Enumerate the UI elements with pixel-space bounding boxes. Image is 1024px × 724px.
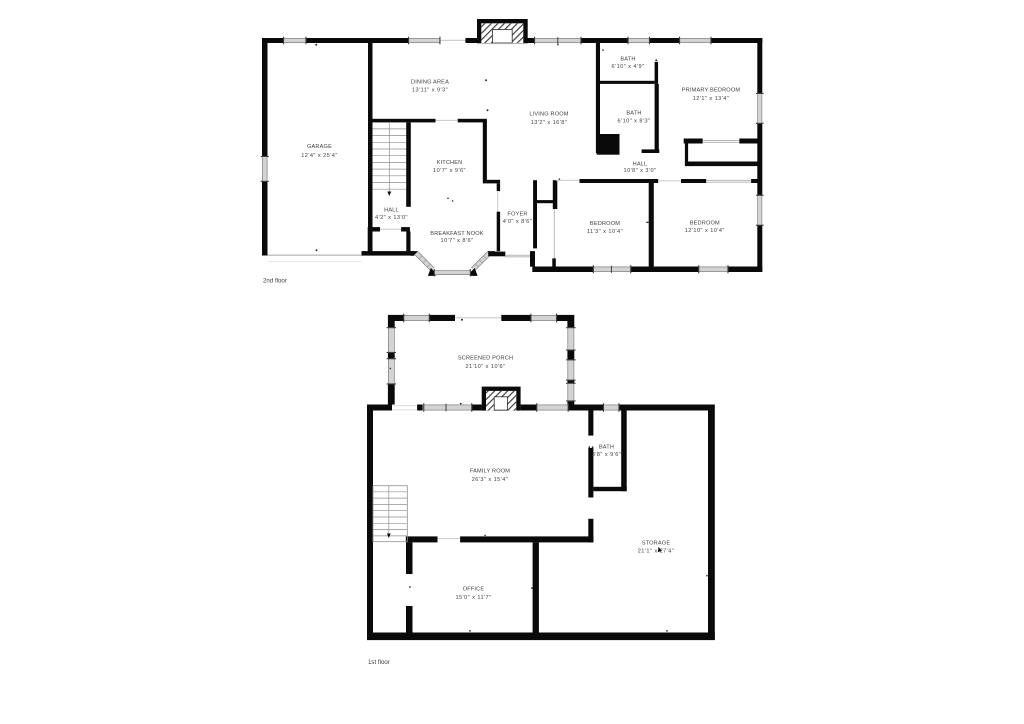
svg-text:12'1" x 13'4": 12'1" x 13'4" [693, 96, 730, 102]
svg-text:1st floor: 1st floor [368, 659, 390, 666]
svg-text:13'2" x 16'8": 13'2" x 16'8" [531, 120, 568, 126]
svg-text:2nd floor: 2nd floor [263, 278, 287, 285]
svg-text:BEDROOM: BEDROOM [590, 221, 620, 227]
svg-text:FOYER: FOYER [507, 212, 527, 218]
svg-text:12'4" x 25'4": 12'4" x 25'4" [301, 153, 338, 159]
svg-text:10'7" x 8'6": 10'7" x 8'6" [441, 238, 474, 244]
svg-text:PRIMARY BEDROOM: PRIMARY BEDROOM [682, 88, 741, 94]
svg-text:HALL: HALL [384, 208, 399, 214]
svg-text:BATH: BATH [626, 111, 641, 117]
svg-text:BEDROOM: BEDROOM [690, 221, 720, 227]
svg-text:6'10" x 8'3": 6'10" x 8'3" [618, 119, 651, 125]
svg-text:10'8" x 3'0": 10'8" x 3'0" [624, 168, 657, 174]
svg-text:3'8" x 9'6": 3'8" x 9'6" [592, 452, 621, 458]
svg-text:12'10" x 10'4": 12'10" x 10'4" [685, 228, 725, 234]
svg-text:21'1" x 27'4": 21'1" x 27'4" [638, 549, 675, 555]
svg-text:10'7" x 9'6": 10'7" x 9'6" [433, 168, 466, 174]
svg-text:BATH: BATH [599, 444, 614, 450]
svg-text:6'10" x 4'9": 6'10" x 4'9" [612, 64, 645, 70]
svg-text:BATH: BATH [620, 56, 635, 62]
svg-text:21'10" x 10'6": 21'10" x 10'6" [465, 364, 505, 370]
svg-text:SCREENED PORCH: SCREENED PORCH [458, 356, 513, 362]
svg-text:STORAGE: STORAGE [642, 541, 671, 547]
svg-text:26'3" x 15'4": 26'3" x 15'4" [472, 477, 509, 483]
svg-text:KITCHEN: KITCHEN [437, 160, 463, 166]
svg-text:11'3" x 10'4": 11'3" x 10'4" [587, 229, 623, 235]
svg-text:BREAKFAST NOOK: BREAKFAST NOOK [430, 231, 483, 237]
svg-text:GARAGE: GARAGE [307, 144, 332, 150]
svg-text:OFFICE: OFFICE [463, 587, 485, 593]
svg-text:DINING AREA: DINING AREA [411, 79, 449, 85]
svg-text:HALL: HALL [633, 162, 648, 168]
svg-text:13'11" x 9'3": 13'11" x 9'3" [412, 87, 448, 93]
svg-text:FAMILY ROOM: FAMILY ROOM [470, 469, 510, 475]
svg-text:15'0" x 11'7": 15'0" x 11'7" [455, 595, 491, 601]
svg-text:4'2" x 13'0": 4'2" x 13'0" [375, 215, 408, 221]
svg-text:LIVING ROOM: LIVING ROOM [529, 112, 568, 118]
svg-text:4'0" x 8'6": 4'0" x 8'6" [503, 219, 532, 225]
